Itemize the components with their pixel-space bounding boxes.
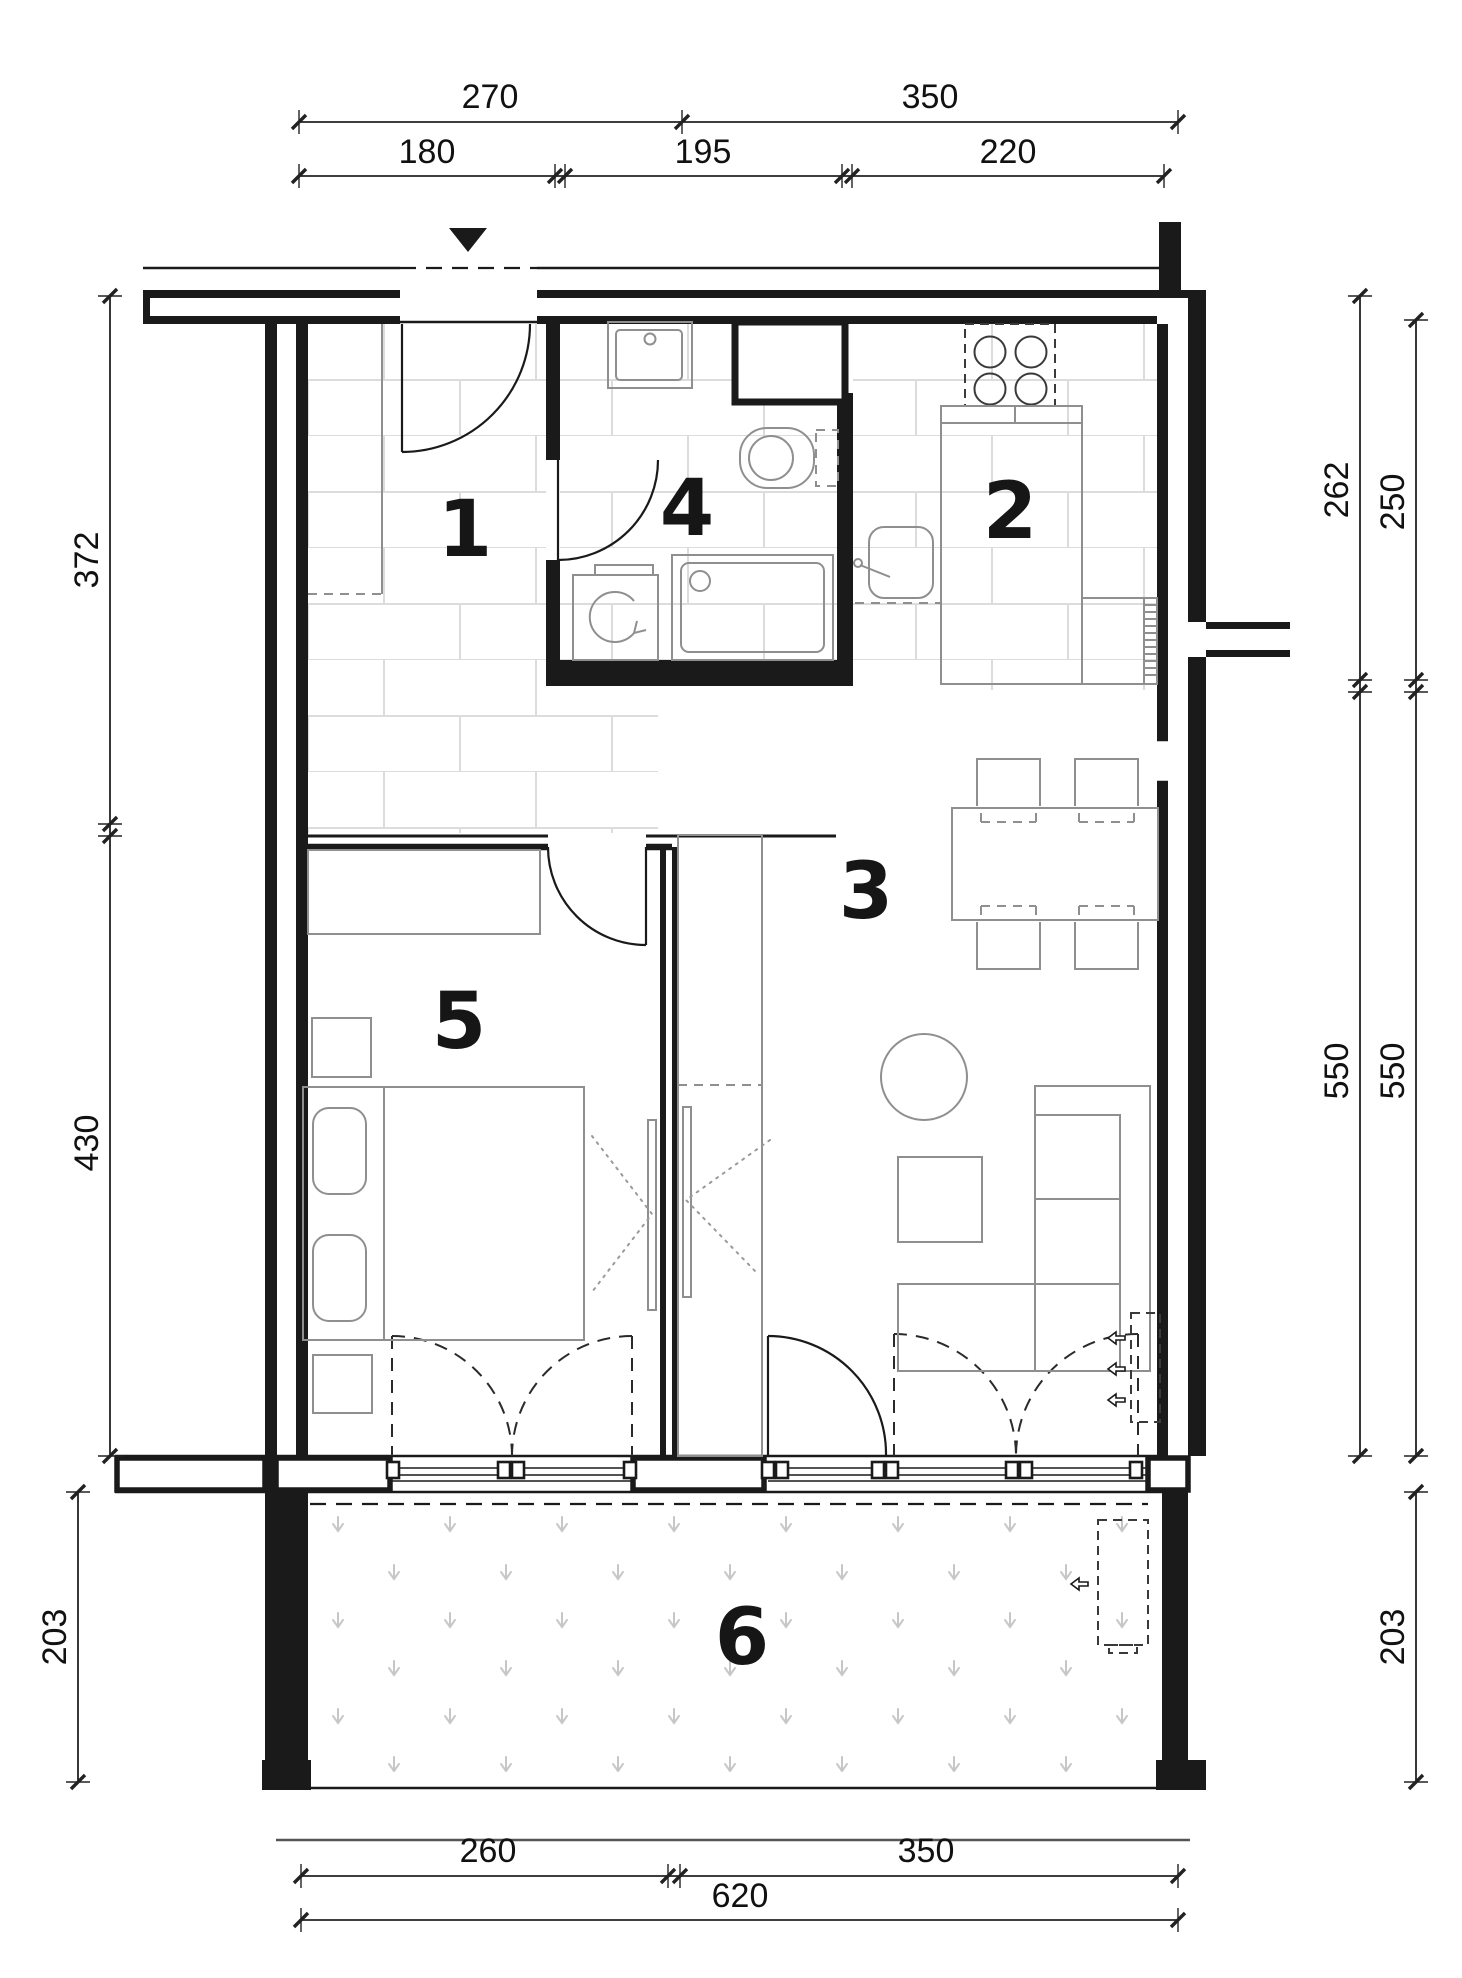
- bottom-wall-left-extension: [117, 1458, 265, 1490]
- nightstand-icon: [312, 1018, 371, 1077]
- hall-tiles-lower: [546, 688, 658, 833]
- ac-unit-living: [1108, 1313, 1160, 1422]
- room-label-3: 3: [839, 847, 893, 937]
- room-label-6: 6: [715, 1593, 769, 1683]
- dim-label: 270: [462, 78, 519, 116]
- living-balcony-window: [894, 1334, 1138, 1456]
- dim-label: 372: [68, 532, 106, 589]
- dim-label: 550: [1318, 1043, 1356, 1100]
- window-pier-a: [276, 1458, 390, 1490]
- balcony-wall-left: [265, 1492, 308, 1762]
- bedroom-partition-wall: [660, 847, 666, 1456]
- dining-chair: [977, 759, 1040, 822]
- dim-label: 550: [1374, 1043, 1412, 1100]
- living-balcony-door: [768, 1336, 886, 1456]
- right-neighbour-wall: [1206, 622, 1290, 629]
- bedroom-balcony-window: [392, 1336, 632, 1456]
- sliding-panel: [648, 1120, 656, 1310]
- dim-label: 203: [36, 1609, 74, 1666]
- coffee-table-icon: [881, 1034, 967, 1120]
- entrance-marker-icon: [449, 228, 487, 252]
- sliding-wardrobe-column: [592, 835, 770, 1456]
- dining-chair: [1075, 759, 1138, 822]
- dim-label: 250: [1374, 474, 1412, 531]
- room-label-4: 4: [660, 464, 714, 554]
- bathroom-wall-right: [837, 393, 853, 660]
- bathroom-wall-left-upper: [546, 324, 560, 460]
- dim-label: 180: [399, 133, 456, 171]
- corner-sofa-icon: [898, 1086, 1150, 1371]
- nightstand-icon: [313, 1355, 372, 1413]
- floor-plan-page: 270 350 180 195 220 372 430 203 262 550 …: [0, 0, 1462, 1978]
- bathroom-wall-bottom: [546, 660, 853, 686]
- dim-label: 260: [460, 1832, 517, 1870]
- pouf-icon: [898, 1157, 982, 1242]
- top-right-wall-spur: [1159, 222, 1181, 292]
- room-label-2: 2: [983, 467, 1037, 557]
- bathroom-wall-left-lower: [546, 560, 560, 660]
- dim-label: 203: [1374, 1609, 1412, 1666]
- dim-label: 620: [712, 1877, 769, 1915]
- bedroom-door: [548, 847, 646, 945]
- dining-table: [952, 808, 1158, 920]
- room-label-1: 1: [438, 485, 492, 575]
- pillow-icon: [313, 1235, 366, 1321]
- window-pier-c: [1148, 1458, 1188, 1490]
- dining-chair: [1075, 906, 1138, 969]
- service-shaft: [735, 322, 845, 402]
- hall-tiles: [308, 324, 546, 833]
- room-label-5: 5: [432, 977, 486, 1067]
- dim-label: 350: [902, 78, 959, 116]
- pillow-icon: [313, 1108, 366, 1194]
- dim-label: 220: [980, 133, 1037, 171]
- wardrobe-icon: [308, 850, 540, 934]
- dining-set: [952, 759, 1158, 969]
- dim-label: 195: [675, 133, 732, 171]
- dim-label: 350: [898, 1832, 955, 1870]
- window-pier-b: [633, 1458, 764, 1490]
- dim-label: 430: [68, 1115, 106, 1172]
- dining-chair: [977, 906, 1040, 969]
- dim-label: 262: [1318, 462, 1356, 519]
- double-bed-icon: [303, 1087, 584, 1340]
- floor-plan-drawing: 270 350 180 195 220 372 430 203 262 550 …: [0, 0, 1462, 1978]
- bedroom-furniture: [303, 850, 584, 1413]
- balcony-wall-right: [1162, 1492, 1188, 1762]
